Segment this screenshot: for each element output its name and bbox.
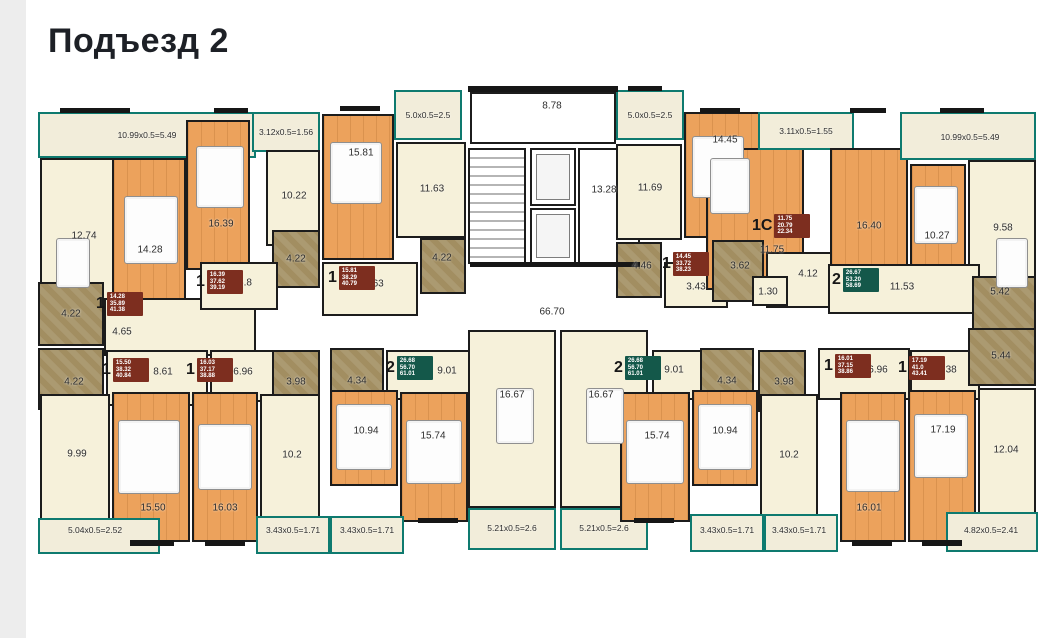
hall-c1-label: 9.01 bbox=[437, 366, 456, 377]
apt-badge-4-number: 1 bbox=[662, 256, 671, 272]
table-furniture bbox=[996, 238, 1028, 288]
hall-a4-label: 3.43 bbox=[686, 282, 705, 293]
bedroom-b3-label: 16.01 bbox=[856, 503, 881, 514]
bath-a1-label: 4.22 bbox=[61, 309, 80, 320]
apt-badge-10-area-line: 61.01 bbox=[628, 371, 658, 378]
apt-badge-8: 116.0337.1738.88 bbox=[186, 358, 233, 382]
hall-a1-label: 4.65 bbox=[112, 327, 131, 338]
apt-badge-8-areas: 16.0337.1738.88 bbox=[197, 358, 233, 382]
bed-furniture bbox=[336, 404, 392, 470]
elevator-2 bbox=[530, 208, 576, 264]
bedroom-a4-label: 14.45 bbox=[712, 135, 737, 146]
apt-badge-12: 117.1941.043.41 bbox=[898, 356, 945, 380]
apt-badge-5-areas: 11.7520.7922.34 bbox=[774, 214, 810, 238]
apt-badge-6-area-line: 58.69 bbox=[846, 283, 876, 290]
apt-badge-6-number: 2 bbox=[832, 272, 841, 288]
corridor-area-label: 66.70 bbox=[539, 307, 564, 318]
room-b4-label: 17.19 bbox=[930, 425, 955, 436]
bedroom-c2-label: 10.94 bbox=[712, 426, 737, 437]
wall-segment bbox=[418, 518, 458, 523]
apt-badge-1-areas: 14.2835.8941.38 bbox=[107, 292, 143, 316]
apt-badge-2-area-line: 39.19 bbox=[210, 285, 240, 292]
bedroom-a6-label: 10.27 bbox=[924, 231, 949, 242]
bath-a2-label: 4.22 bbox=[286, 254, 305, 265]
balcony-a4-label: 5.0x0.5=2.5 bbox=[628, 110, 673, 120]
apt-badge-3-number: 1 bbox=[328, 270, 337, 286]
balcony-c1-label: 5.21x0.5=2.6 bbox=[487, 523, 536, 533]
bath-a4-label: 4.46 bbox=[632, 261, 651, 272]
bedroom-a1-label: 14.28 bbox=[137, 245, 162, 256]
apt-badge-4: 114.4533.7238.23 bbox=[662, 252, 709, 276]
balcony-b2-label: 3.43x0.5=1.71 bbox=[266, 525, 320, 535]
wall-segment bbox=[468, 86, 618, 92]
bedroom-a2-label: 16.39 bbox=[208, 219, 233, 230]
balcony-a6-label: 10.99x0.5=5.49 bbox=[941, 132, 1000, 142]
apt-badge-9-area-line: 61.01 bbox=[400, 371, 430, 378]
kitchen-b2-label: 10.2 bbox=[282, 450, 301, 461]
sofa-furniture bbox=[198, 424, 252, 490]
apt-badge-11-area-line: 38.86 bbox=[838, 369, 868, 376]
apt-badge-2-areas: 16.3937.6239.19 bbox=[207, 270, 243, 294]
living-a6-label: 16.40 bbox=[856, 221, 881, 232]
apt-badge-3: 115.8138.2940.79 bbox=[328, 266, 375, 290]
bed-furniture bbox=[196, 146, 244, 208]
apt-badge-5-number: 1С bbox=[752, 218, 772, 234]
balcony-a3-label: 5.0x0.5=2.5 bbox=[406, 110, 451, 120]
apt-badge-7: 115.5038.3240.84 bbox=[102, 358, 149, 382]
apt-badge-2-number: 1 bbox=[196, 274, 205, 290]
wc-a5-label: 1.30 bbox=[758, 287, 777, 298]
apt-badge-9-areas: 26.6856.7061.01 bbox=[397, 356, 433, 380]
bath-a5-label: 3.62 bbox=[730, 261, 749, 272]
hall-c2-label: 9.01 bbox=[664, 365, 683, 376]
apt-badge-10-areas: 26.6856.7061.01 bbox=[625, 356, 661, 380]
balcony-b1-label: 5.04x0.5=2.52 bbox=[68, 525, 122, 535]
bath-b4-label: 5.44 bbox=[991, 351, 1010, 362]
bed-furniture bbox=[698, 404, 752, 470]
floor-plan-page: Подъезд 2 10.99x0.5=5.4912.7414.284.654.… bbox=[0, 0, 1042, 638]
wall-segment bbox=[130, 540, 174, 546]
living-c2-label: 15.74 bbox=[644, 431, 669, 442]
wall-segment bbox=[205, 540, 245, 546]
apt-badge-4-area-line: 38.23 bbox=[676, 267, 706, 274]
hall-b2-label: 6.96 bbox=[233, 367, 252, 378]
kitchen-a2-label: 10.22 bbox=[281, 191, 306, 202]
apt-badge-2: 116.3937.6239.19 bbox=[196, 270, 243, 294]
greatroom-c1-label: 16.67 bbox=[499, 390, 524, 401]
wall-segment bbox=[470, 262, 640, 267]
apt-badge-1-area-line: 41.38 bbox=[110, 307, 140, 314]
balcony-c2-label: 5.21x0.5=2.6 bbox=[579, 523, 628, 533]
wall-segment bbox=[852, 540, 892, 546]
hall-b3-label: 6.96 bbox=[868, 365, 887, 376]
living-a6 bbox=[830, 148, 908, 278]
living-c1-label: 15.74 bbox=[420, 431, 445, 442]
bath-c1-label: 4.34 bbox=[347, 376, 366, 387]
apt-badge-7-area-line: 40.84 bbox=[116, 373, 146, 380]
wall-segment bbox=[214, 108, 248, 113]
table-furniture bbox=[56, 238, 90, 288]
apt-badge-1-number: 1 bbox=[96, 296, 105, 312]
apt-badge-11: 116.0137.1538.86 bbox=[824, 354, 871, 378]
apt-badge-12-number: 1 bbox=[898, 360, 907, 376]
bath-a6-label: 5.42 bbox=[990, 287, 1009, 298]
apt-badge-6: 226.6753.2058.69 bbox=[832, 268, 879, 292]
sofa-furniture bbox=[710, 158, 750, 214]
apt-badge-5: 1С11.7520.7922.34 bbox=[752, 214, 810, 238]
apt-badge-9: 226.6856.7061.01 bbox=[386, 356, 433, 380]
balcony-a2-label: 3.12x0.5=1.56 bbox=[259, 127, 313, 137]
bath-a3 bbox=[420, 238, 466, 294]
bath-a3-label: 4.22 bbox=[432, 253, 451, 264]
bath-c2-label: 4.34 bbox=[717, 376, 736, 387]
kitchen-a6-label: 9.58 bbox=[993, 223, 1012, 234]
apt-badge-3-area-line: 40.79 bbox=[342, 281, 372, 288]
wall-segment bbox=[940, 108, 984, 113]
apt-badge-11-areas: 16.0137.1538.86 bbox=[835, 354, 871, 378]
wall-segment bbox=[700, 108, 740, 113]
apt-badge-10-number: 2 bbox=[614, 360, 623, 376]
hall-a6-label: 11.53 bbox=[890, 282, 914, 293]
floor-plan: 10.99x0.5=5.4912.7414.284.654.2216.393.1… bbox=[0, 0, 1042, 638]
apt-badge-12-area-line: 43.41 bbox=[912, 371, 942, 378]
apt-badge-1: 114.2835.8941.38 bbox=[96, 292, 143, 316]
apt-badge-11-number: 1 bbox=[824, 358, 833, 374]
balcony-b4-label: 4.82x0.5=2.41 bbox=[964, 525, 1018, 535]
apt-badge-7-number: 1 bbox=[102, 362, 111, 378]
apt-badge-4-areas: 14.4533.7238.23 bbox=[673, 252, 709, 276]
apt-badge-8-area-line: 38.88 bbox=[200, 373, 230, 380]
apt-badge-5-area-line: 22.34 bbox=[777, 229, 807, 236]
wall-segment bbox=[922, 540, 962, 546]
kitchen-a1-label: 12.74 bbox=[71, 231, 96, 242]
apt-badge-3-areas: 15.8138.2940.79 bbox=[339, 266, 375, 290]
apt-badge-10: 226.6856.7061.01 bbox=[614, 356, 661, 380]
bath-b3-label: 3.98 bbox=[774, 377, 793, 388]
wall-segment bbox=[634, 518, 674, 523]
balcony-c2r-label: 3.43x0.5=1.71 bbox=[700, 525, 754, 535]
balcony-b2 bbox=[256, 516, 330, 554]
stairwell bbox=[468, 148, 526, 264]
balcony-a1-label: 10.99x0.5=5.49 bbox=[118, 130, 177, 140]
balcony-c1l-label: 3.43x0.5=1.71 bbox=[340, 525, 394, 535]
apt-badge-8-number: 1 bbox=[186, 362, 195, 378]
balcony-a5-label: 3.11x0.5=1.55 bbox=[779, 126, 833, 136]
balcony-b3-label: 3.43x0.5=1.71 bbox=[772, 525, 826, 535]
bedroom-a3-label: 15.81 bbox=[348, 148, 373, 159]
kitchen-a4-label: 11.69 bbox=[638, 183, 662, 194]
hall-b1-label: 8.61 bbox=[153, 367, 172, 378]
kitchen-a3-label: 11.63 bbox=[420, 184, 444, 195]
kitchen-b4-label: 12.04 bbox=[993, 445, 1018, 456]
hall-a5-label: 4.12 bbox=[798, 269, 817, 280]
bed-furniture bbox=[118, 420, 180, 494]
wall-segment bbox=[340, 106, 380, 111]
greatroom-c2-label: 16.67 bbox=[588, 390, 613, 401]
entry-vestibule-label: 8.78 bbox=[542, 101, 561, 112]
studio-a5-area-label: 11.75 bbox=[760, 245, 784, 256]
kitchen-b1-label: 9.99 bbox=[67, 449, 86, 460]
bath-b2-label: 3.98 bbox=[286, 377, 305, 388]
bed-furniture bbox=[846, 420, 900, 492]
bath-b1-label: 4.22 bbox=[64, 377, 83, 388]
balcony-c1l bbox=[330, 516, 404, 554]
bedroom-c1-label: 10.94 bbox=[353, 426, 378, 437]
bedroom-b1-label: 15.50 bbox=[140, 503, 165, 514]
wall-segment bbox=[850, 108, 886, 113]
apt-badge-12-areas: 17.1941.043.41 bbox=[909, 356, 945, 380]
wall-segment bbox=[60, 108, 130, 113]
elevator-1 bbox=[530, 148, 576, 206]
wall-segment bbox=[628, 86, 662, 91]
bedroom-b2-label: 16.03 bbox=[212, 503, 237, 514]
apt-badge-6-areas: 26.6753.2058.69 bbox=[843, 268, 879, 292]
apt-badge-9-number: 2 bbox=[386, 360, 395, 376]
elevator-hall-label: 13.28 bbox=[591, 185, 616, 196]
kitchen-c2-label: 10.2 bbox=[779, 450, 798, 461]
apt-badge-7-areas: 15.5038.3240.84 bbox=[113, 358, 149, 382]
balcony-b1 bbox=[38, 518, 160, 554]
